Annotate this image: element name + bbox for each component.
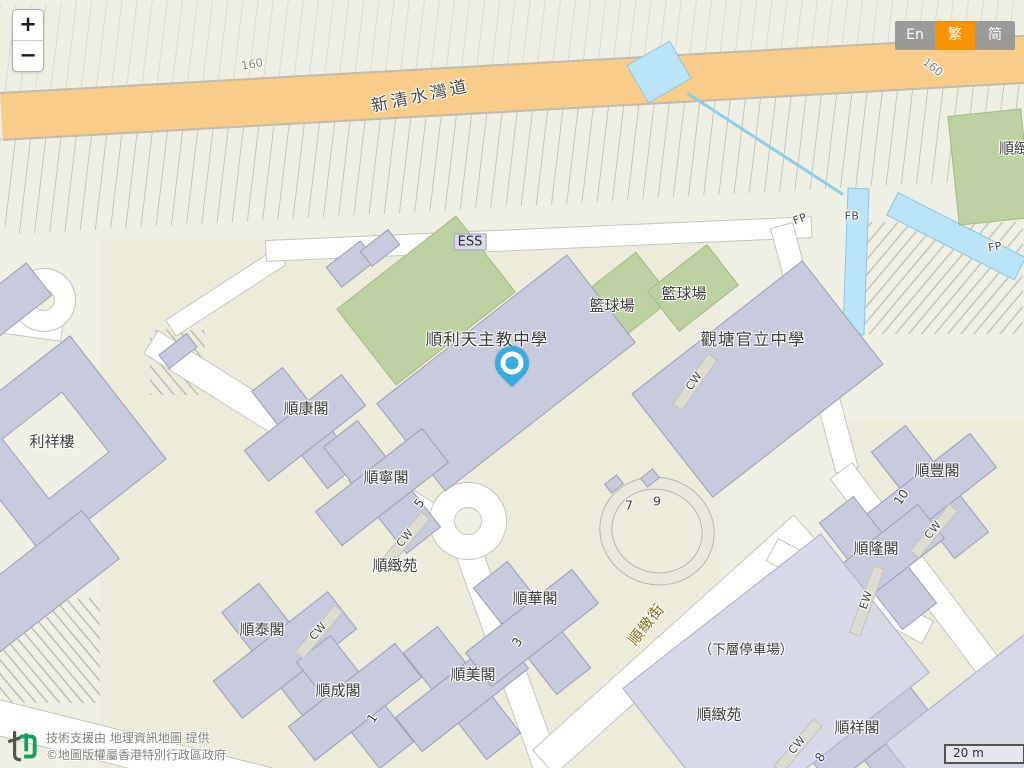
map-label: 7 xyxy=(625,498,633,513)
map-label: 順寧閣 xyxy=(363,467,408,488)
map-label: CW xyxy=(394,526,417,549)
map-label: 順豐閣 xyxy=(914,460,959,481)
map-label: 順祥閣 xyxy=(834,717,879,738)
map-label: 順華閣 xyxy=(512,588,557,609)
scale-bar: 20 m xyxy=(944,744,1024,764)
map-label: 觀塘官立中學 xyxy=(701,326,806,350)
map-label: FP xyxy=(987,239,1003,254)
pin-ring xyxy=(496,347,529,380)
map-label: 新清水灣道 xyxy=(368,71,471,116)
map-label: 利祥樓 xyxy=(29,431,74,452)
map-canvas[interactable]: 新清水灣道160160ESS籃球場籃球場順利天主教中學觀塘官立中學利祥樓順康閣順… xyxy=(0,0,1024,768)
language-switcher: En 繁 简 xyxy=(895,21,1015,50)
map-label: 順美閣 xyxy=(450,664,495,685)
map-label: 3 xyxy=(509,634,526,649)
map-label: CW xyxy=(307,619,330,642)
scale-bar-label: 20 m xyxy=(953,746,984,760)
map-label: 順緻苑 xyxy=(372,555,417,576)
map-label: 160 xyxy=(240,55,264,73)
zoom-in-button[interactable]: + xyxy=(13,10,43,40)
zoom-control: + − xyxy=(12,9,44,72)
map-label: 順成閣 xyxy=(315,680,360,701)
map-label: 順隆閣 xyxy=(853,538,898,559)
map-label: 160 xyxy=(920,55,946,80)
map-label: （下層停車場） xyxy=(699,638,794,658)
attribution-line2: ©地圖版權屬香港特別行政區政府 xyxy=(46,747,226,764)
map-label: EW xyxy=(857,589,876,611)
map-label: 籃球場 xyxy=(661,283,706,304)
map-label: FP xyxy=(791,211,809,228)
map-label: 順利天主教中學 xyxy=(426,326,549,350)
map-label: 10 xyxy=(890,486,911,508)
map-label: CW xyxy=(786,733,809,756)
map-label: 5 xyxy=(411,495,428,510)
zoom-out-button[interactable]: − xyxy=(13,40,43,71)
map-label: 順緻 xyxy=(999,138,1024,159)
map-label: 9 xyxy=(653,494,661,509)
map-label: ESS xyxy=(454,234,487,251)
attribution-line1: 技術支援由 地理資訊地圖 提供 xyxy=(46,730,226,747)
map-label: CW xyxy=(683,369,705,392)
map-label: FB xyxy=(845,210,860,223)
geoinfo-map-logo xyxy=(6,728,38,764)
map-label: 順緻苑 xyxy=(696,704,741,725)
map-label: 順康閣 xyxy=(283,398,328,419)
map-label: CW xyxy=(922,518,945,541)
language-button-traditional-chinese[interactable]: 繁 xyxy=(935,21,975,50)
map-label: 順泰閣 xyxy=(239,619,284,640)
attribution: 技術支援由 地理資訊地圖 提供 ©地圖版權屬香港特別行政區政府 xyxy=(6,728,226,764)
language-button-simplified-chinese[interactable]: 简 xyxy=(975,21,1015,50)
map-label: 籃球場 xyxy=(589,295,634,316)
map-label: 8 xyxy=(812,749,829,764)
map-label: 1 xyxy=(364,710,381,725)
language-button-english[interactable]: En xyxy=(895,21,935,50)
map-label: 順緻街 xyxy=(623,599,669,650)
